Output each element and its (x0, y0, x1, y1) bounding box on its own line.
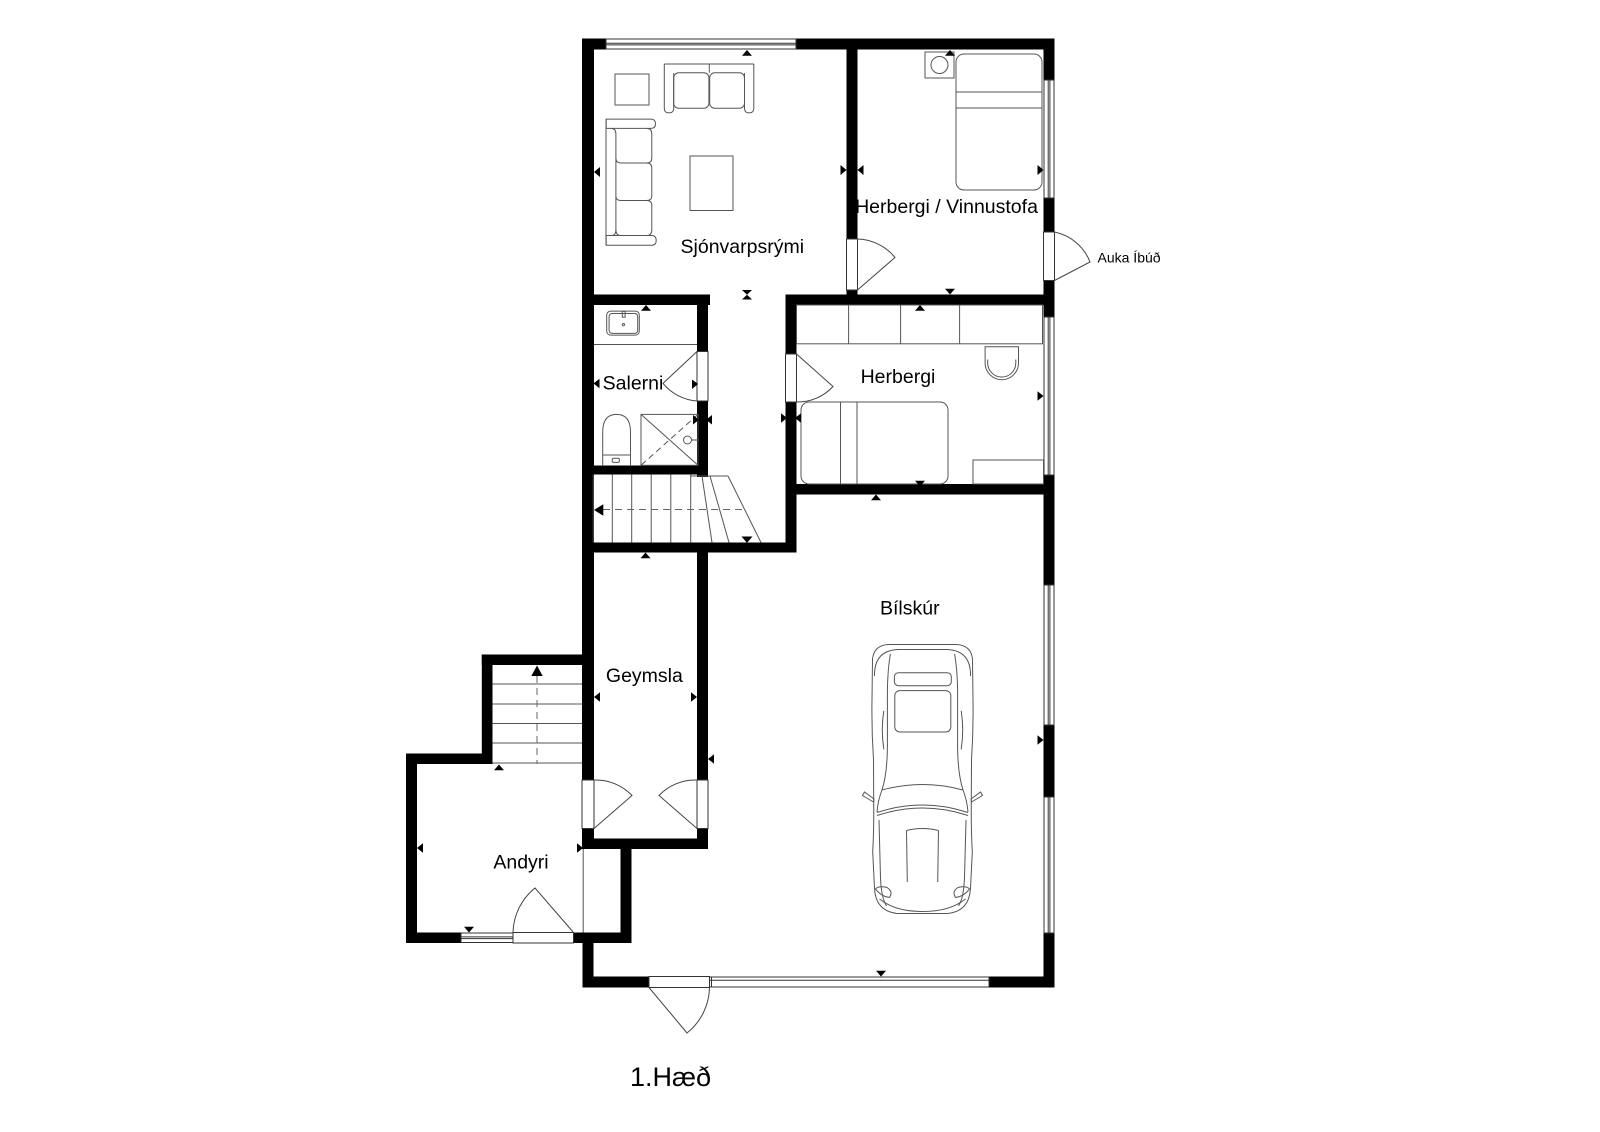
svg-text:Herbergi: Herbergi (861, 366, 936, 388)
svg-text:Sjónvarpsrými: Sjónvarpsrými (681, 236, 805, 258)
svg-text:Geymsla: Geymsla (606, 665, 683, 687)
svg-text:Herbergi / Vinnustofa: Herbergi / Vinnustofa (855, 196, 1038, 218)
svg-text:Auka Íbúð: Auka Íbúð (1098, 250, 1161, 266)
svg-text:Salerni: Salerni (603, 373, 664, 395)
svg-text:Andyri: Andyri (493, 852, 548, 874)
svg-text:Bílskúr: Bílskúr (880, 598, 940, 620)
svg-text:1.Hæð: 1.Hæð (630, 1062, 711, 1092)
